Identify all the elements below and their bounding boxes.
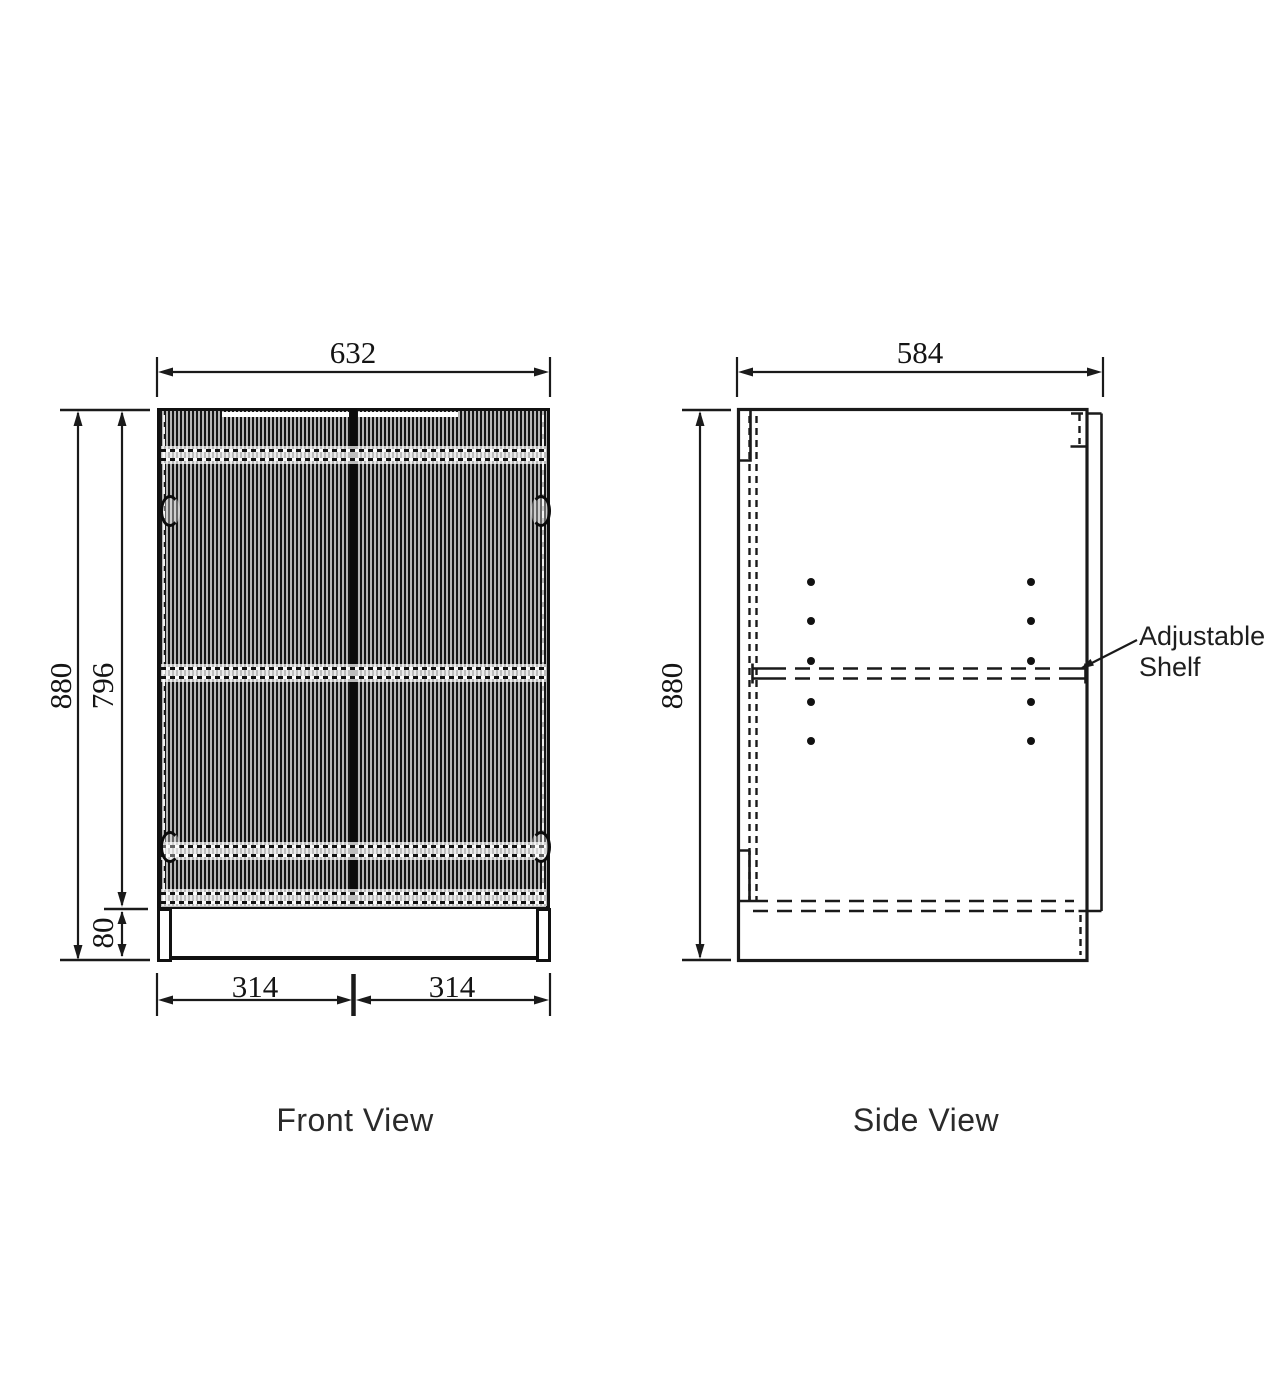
adjustable-shelf-label-line1: Adjustable	[1139, 621, 1265, 652]
hinge-mark-bottom-left	[160, 831, 180, 863]
front-door-left-width-dim-text: 314	[155, 971, 355, 1003]
side-top-left-notch	[739, 411, 751, 461]
door-gap-line	[350, 409, 357, 908]
adjustable-shelf-hidden-lines	[771, 669, 1074, 679]
side-bottom-panel-hidden-lines	[753, 901, 1074, 911]
front-view-label: Front View	[235, 1102, 475, 1139]
left-hidden-edge-line	[163, 415, 165, 905]
door-top-edge-right	[358, 412, 458, 417]
front-kick-height-dim-text: 80	[87, 833, 119, 1033]
adjustable-shelf-leader-line	[1080, 640, 1137, 669]
side-height-dim-text: 880	[656, 586, 688, 786]
adjustable-shelf-end-caps	[753, 664, 1086, 684]
side-bottom-left-notch	[739, 851, 754, 902]
hidden-bottom-band	[161, 889, 546, 907]
shelf-pin-holes	[807, 578, 1035, 745]
kickboard-bottom-line	[170, 956, 536, 960]
hinge-mark-bottom-right	[531, 831, 551, 863]
front-height-dim-text: 880	[45, 586, 77, 786]
hidden-shelf-band-middle	[161, 664, 546, 682]
hinge-mark-top-right	[531, 495, 551, 527]
side-view-label: Side View	[806, 1102, 1046, 1139]
side-view-outline	[739, 410, 1088, 961]
side-back-panel	[1079, 414, 1102, 912]
adjustable-shelf-label-line2: Shelf	[1139, 652, 1265, 683]
front-left-leg	[157, 908, 172, 962]
door-top-edge-left	[222, 412, 349, 417]
hidden-rail-band-top	[161, 446, 546, 464]
front-width-dim-text: 632	[253, 337, 453, 369]
side-top-right-notch-ticks	[1071, 414, 1088, 447]
front-door-height-dim-text: 796	[87, 586, 119, 786]
technical-drawing-canvas: 632 880 796 80 314 314 584 880 Adjustabl…	[0, 0, 1275, 1400]
adjustable-shelf-label: Adjustable Shelf	[1139, 621, 1265, 683]
front-right-leg	[536, 908, 551, 962]
front-door-right-width-dim-text: 314	[352, 971, 552, 1003]
side-dim-880	[682, 410, 731, 960]
hidden-rail-band-lower	[161, 842, 546, 860]
hinge-mark-top-left	[160, 495, 180, 527]
side-depth-dim-text: 584	[820, 337, 1020, 369]
